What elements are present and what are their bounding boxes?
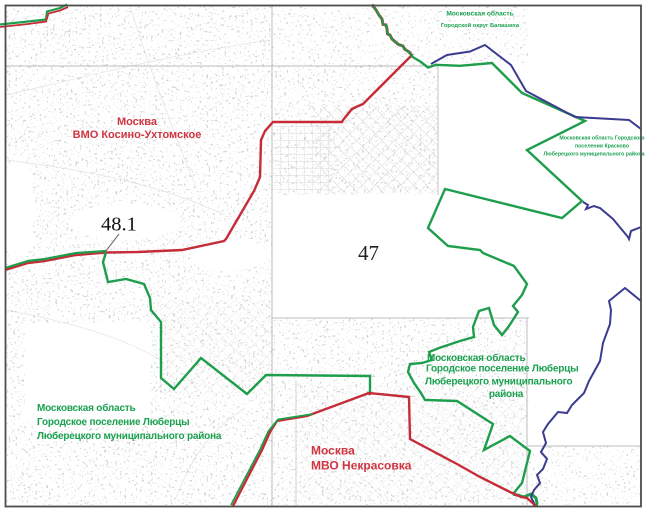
svg-text:Люберецкого муниципального рай: Люберецкого муниципального района [37,430,222,442]
svg-text:47: 47 [358,241,379,265]
svg-text:Московская область Городского: Московская область Городского [559,135,645,142]
svg-text:Московская область: Московская область [427,352,525,364]
svg-text:Люберецкого муниципального: Люберецкого муниципального [425,376,572,388]
svg-text:Москва: Москва [117,116,158,128]
svg-text:Московская область: Московская область [37,402,135,414]
svg-text:Москва: Москва [311,444,355,458]
svg-text:МВО Некрасовка: МВО Некрасовка [311,459,412,473]
svg-text:48.1: 48.1 [101,214,137,236]
svg-text:Московская область: Московская область [446,10,513,18]
svg-text:Городской округ Балашиха: Городской округ Балашиха [441,22,520,29]
svg-text:ВМО Косино-Ухтомское: ВМО Косино-Ухтомское [73,129,202,141]
svg-text:Городское поселение Люберцы: Городское поселение Люберцы [37,416,189,428]
svg-text:Люберецкого муниципального рай: Люберецкого муниципального района [543,151,644,158]
svg-text:Городское поселение Люберцы: Городское поселение Люберцы [426,363,578,375]
svg-text:поселения Красково: поселения Красково [575,144,630,150]
svg-text:района: района [489,389,524,400]
